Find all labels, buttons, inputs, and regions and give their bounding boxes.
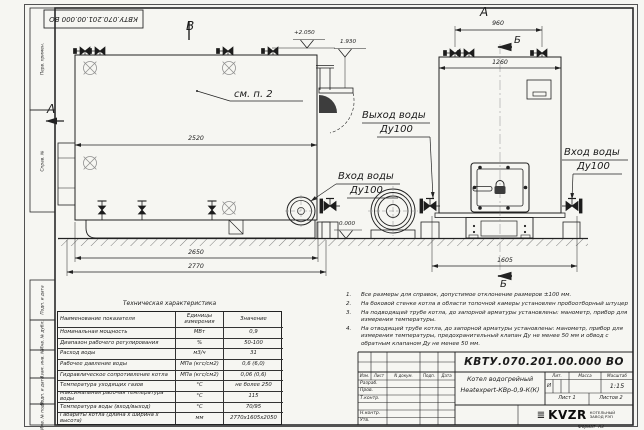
sign-col-list: Лист — [371, 374, 387, 378]
format-value: А3 — [598, 425, 604, 430]
boiler-side-view — [435, 44, 565, 270]
margin-label-perv-primen: Перв. примен. — [40, 43, 45, 75]
note-text: На боковой стенке котла в области топочн… — [361, 301, 628, 307]
tech-row-unit: мм — [176, 413, 224, 424]
view-a-label: А — [480, 6, 488, 18]
tech-row-unit: °С — [176, 392, 224, 403]
format-cell: Формат А3 — [578, 426, 604, 430]
dim-2650: 2650 — [166, 250, 226, 256]
tech-table: Наименование показателя Единицы измерени… — [57, 311, 282, 425]
notes-block: 1. Все размеры для справок, допустимое о… — [344, 292, 632, 350]
inlet-water-right-label: Вход воды — [564, 148, 620, 158]
note-text: Все размеры для справок, допустимое откл… — [361, 292, 571, 298]
sign-col-data: Дата — [438, 374, 455, 378]
inlet-water-right-dn: Ду100 — [577, 162, 610, 172]
kvzr-logo: ≣ KVZR КОТЕЛЬНЫЙ ЗАВОД РЭП — [520, 406, 632, 424]
tech-row-name: Расход воды — [58, 349, 176, 360]
note-text: На подводящей трубе котла, до запорной а… — [361, 310, 627, 323]
outlet-water-dn: Ду100 — [380, 125, 413, 135]
tech-row-value: 0,06 (0,6) — [224, 371, 283, 382]
margin-label-inv-dubl: Инв. № дубл. — [40, 320, 45, 349]
dim-1605: 1605 — [475, 258, 535, 264]
tech-row-value: 50-100 — [224, 339, 283, 350]
sign-col-izm: Изм. — [358, 374, 371, 378]
product-name-line2: Heatexpert-КВр-0,9-К(К) — [455, 388, 545, 394]
tech-row-name: Температура уходящих газов — [58, 381, 176, 392]
tech-row-value: 70/95 — [224, 403, 283, 414]
tech-col-header: Наименование показателя — [58, 312, 176, 328]
ground — [58, 239, 588, 247]
note-number: 2. — [346, 301, 351, 308]
tech-row-name: Максимальная рабочая температура воды — [58, 392, 176, 403]
note-item: 4. На отводящей трубе котла, до запорной… — [344, 326, 632, 348]
section-b-top-label: Б — [514, 36, 521, 46]
tech-row-unit: м3/ч — [176, 349, 224, 360]
tech-row-unit: % — [176, 339, 224, 350]
note-text: На отводящей трубе котла, до запорной ар… — [361, 326, 623, 347]
tech-row-value: не более 250 — [224, 381, 283, 392]
dim-2520: 2520 — [166, 136, 226, 142]
outlet-pipe — [316, 66, 354, 134]
tech-row-value: 115 — [224, 392, 283, 403]
see-note-label: см. п. 2 — [234, 90, 273, 100]
dim-1260: 1260 — [470, 60, 530, 66]
tech-row-name: Диапазон рабочего регулирования — [58, 339, 176, 350]
note-item: 3. На подводящей трубе котла, до запорно… — [344, 310, 632, 325]
note-number: 1. — [346, 292, 351, 299]
dim-960: 960 — [468, 21, 528, 27]
tech-table-title: Техническая характеристика — [57, 301, 282, 307]
tech-row-unit: МПа (кгс/см2) — [176, 360, 224, 371]
inlet-water-left-dn: Ду100 — [350, 186, 383, 196]
tech-col-header: Значение — [224, 312, 283, 328]
sign-row-utv: Утв. — [360, 419, 369, 424]
sheets-label: Листов — [599, 395, 618, 401]
elevation-outlet: 1.930 — [340, 40, 356, 46]
logo-bars-icon: ≣ — [537, 410, 545, 421]
sheet-cell: Лист 1 — [545, 396, 589, 401]
margin-label-vzam-inv: Взам. инв. № — [40, 349, 45, 378]
tech-row-unit: МВт — [176, 328, 224, 339]
note-number: 4. — [346, 326, 351, 333]
sheet-value: 1 — [573, 395, 576, 401]
tech-row-value: 0,6 (6,0) — [224, 360, 283, 371]
product-name-line1: Котел водогрейный — [455, 377, 545, 383]
logo-text: KVZR — [548, 408, 587, 422]
margin-label-sprav-no: Справ. № — [40, 151, 45, 172]
elevation-ground: 0.000 — [339, 222, 355, 228]
elevation-top: +2.050 — [294, 31, 315, 37]
tech-row-name: Температура воды (вход/выход) — [58, 403, 176, 414]
view-a-arrow-label: А — [47, 103, 55, 115]
doc-number: КВТУ.070.201.00.000 ВО — [455, 352, 633, 372]
tech-col-header: Единицы измерения — [176, 312, 224, 328]
logo-subtext: КОТЕЛЬНЫЙ ЗАВОД РЭП — [590, 411, 616, 420]
drawing-sheet: КВТУ.070.201.00.000 ВО Перв. примен. Спр… — [0, 0, 644, 430]
note-item: 2. На боковой стенке котла в области топ… — [344, 301, 632, 308]
tech-row-name: Габариты котла (длина х ширина х высота) — [58, 413, 176, 424]
scale-label: Масштаб — [601, 374, 633, 378]
sign-row-prov: Пров. — [360, 389, 373, 394]
format-label: Формат — [578, 425, 595, 430]
sign-row-tkontr: Т.контр. — [360, 397, 380, 402]
note-item: 1. Все размеры для справок, допустимое о… — [344, 292, 632, 299]
sign-col-podp: Подп. — [420, 374, 438, 378]
section-b-bottom-label: Б — [500, 280, 507, 290]
dim-2770: 2770 — [166, 264, 226, 270]
sheets-cell: Листов 2 — [589, 396, 633, 401]
tech-row-unit: °С — [176, 381, 224, 392]
logo-sub-line2: ЗАВОД РЭП — [590, 415, 616, 419]
boiler-front-view — [58, 47, 354, 239]
sign-row-nkontr: Н.контр. — [360, 412, 380, 417]
lit-value: И — [545, 384, 553, 390]
tech-row-name: Гидравлическое сопротивление котла — [58, 371, 176, 382]
inlet-water-left-label: Вход воды — [338, 172, 394, 182]
tech-row-value: 0,9 — [224, 328, 283, 339]
tech-row-value: 2770х1605х2050 — [224, 413, 283, 424]
margin-label-podp-data-1: Подп. и дата — [40, 285, 45, 314]
tech-row-name: Рабочее давление воды — [58, 360, 176, 371]
lit-label: Лит. — [545, 374, 569, 378]
corner-stamp: КВТУ.070.201.00.000 ВО — [44, 10, 143, 28]
elevation-marks — [272, 40, 366, 239]
scale-value: 1:15 — [601, 383, 633, 390]
tech-row-unit: °С — [176, 403, 224, 414]
tech-row-name: Номинальная мощность — [58, 328, 176, 339]
outlet-water-label: Выход воды — [362, 111, 426, 121]
sign-col-dokum: N докум. — [387, 374, 420, 378]
view-b-label: В — [186, 20, 194, 32]
margin-label-inv-podl: Инв. № подл. — [40, 400, 45, 430]
note-number: 3. — [346, 310, 351, 317]
sheet-label: Лист — [558, 395, 571, 401]
sign-row-razrab: Разраб. — [360, 382, 378, 387]
tech-row-value: 31 — [224, 349, 283, 360]
tech-row-unit: МПа (кгс/см2) — [176, 371, 224, 382]
sheets-value: 2 — [620, 395, 623, 401]
mass-label: Масса — [569, 374, 601, 378]
